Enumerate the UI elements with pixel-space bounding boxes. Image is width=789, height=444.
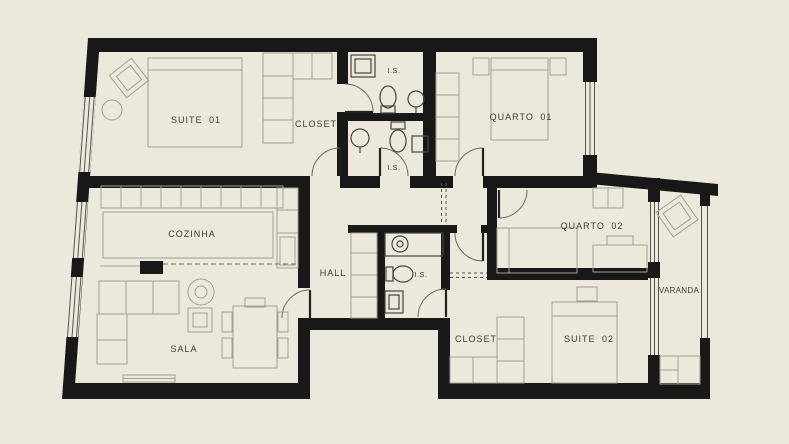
window-quarto01 <box>583 82 597 155</box>
room-label-suite01: SUITE 01 <box>171 115 221 125</box>
room-label-cozinha: COZINHA <box>168 229 216 239</box>
room-label-closet-bottom: CLOSET <box>455 334 497 344</box>
floor-plan-page: SUITE 01 CLOSET I.S. <box>0 0 789 444</box>
room-label-is1: I.S. <box>387 66 400 75</box>
room-label-quarto01: QUARTO 01 <box>490 112 553 122</box>
room-label-is-central: I.S. <box>414 270 427 279</box>
room-label-hall: HALL <box>320 268 347 278</box>
room-label-varanda: VARANDA <box>659 286 700 295</box>
room-label-sala: SALA <box>170 344 197 354</box>
floor-plan-svg: SUITE 01 CLOSET I.S. <box>0 0 789 444</box>
room-label-is2: I.S. <box>387 163 400 172</box>
room-label-closet-top: CLOSET <box>295 119 337 129</box>
room-label-suite02: SUITE 02 <box>564 334 614 344</box>
room-label-quarto02: QUARTO 02 <box>561 221 624 231</box>
